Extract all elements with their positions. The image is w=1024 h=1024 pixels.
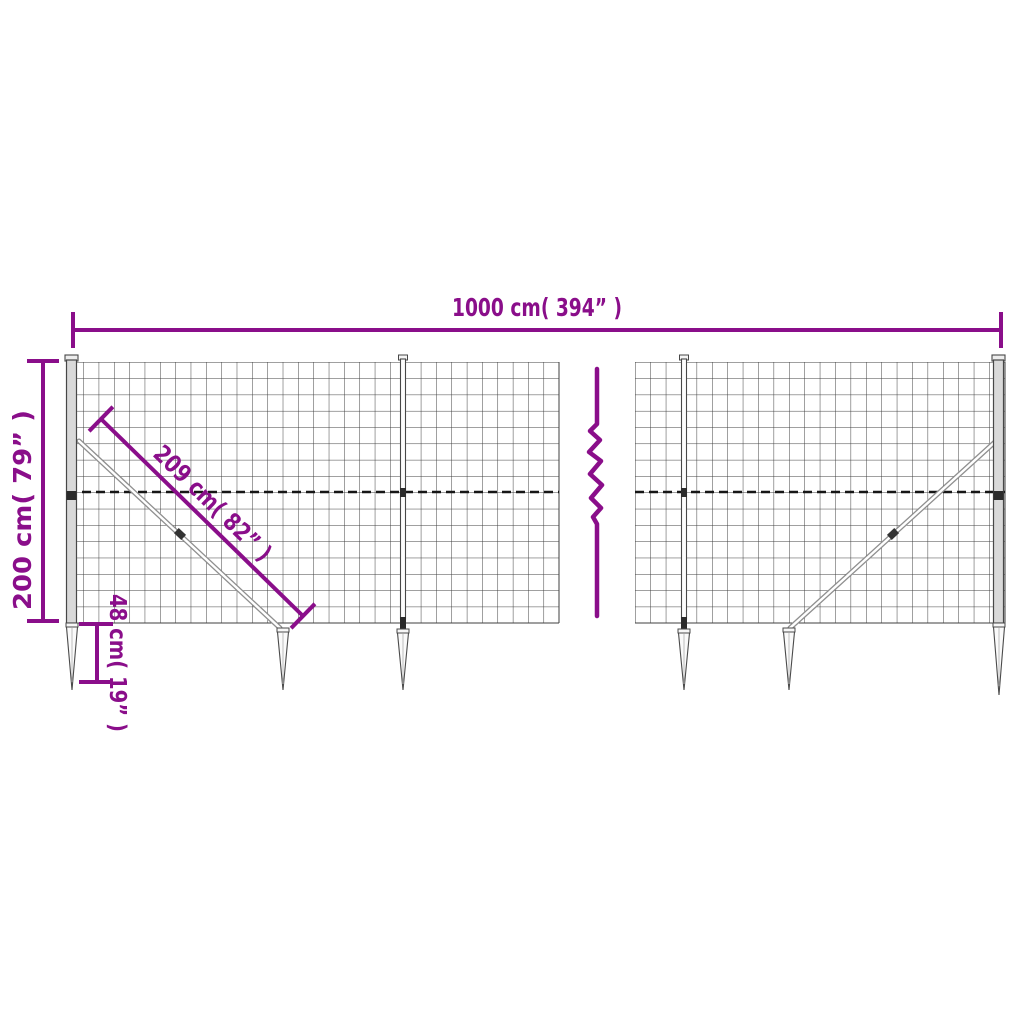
ground-spike-left-brace [277, 628, 289, 690]
post-clamp [400, 488, 406, 497]
ground-spike-left-end [66, 623, 78, 690]
right-fence-panel [635, 355, 1005, 695]
end-post-left [65, 355, 78, 623]
anchor-depth-dimension-label: 48 cm( 19” ) [104, 594, 130, 732]
width-dimension-label: 1000 cm( 394” ) [452, 293, 622, 322]
post-clamp [681, 488, 687, 497]
ground-spike-left-mid [397, 629, 409, 690]
height-dimension-label: 200 cm( 79” ) [8, 410, 37, 610]
end-post-right [992, 355, 1005, 623]
post-clamp [67, 491, 77, 500]
fence-dimension-diagram: 1000 cm( 394” ) 200 cm( 79” ) 209 cm( 82… [0, 0, 1024, 1024]
break-symbol-zigzag [589, 369, 602, 616]
diagram-canvas: 1000 cm( 394” ) 200 cm( 79” ) 209 cm( 82… [0, 0, 1024, 1024]
ground-spike-right-end [993, 623, 1005, 695]
ground-spike-right-mid [678, 629, 690, 690]
ground-spike-right-brace [783, 628, 795, 690]
post-bottom-connector [681, 617, 687, 630]
left-fence-panel [65, 355, 559, 690]
post-bottom-connector [400, 617, 406, 630]
post-clamp [994, 491, 1004, 500]
